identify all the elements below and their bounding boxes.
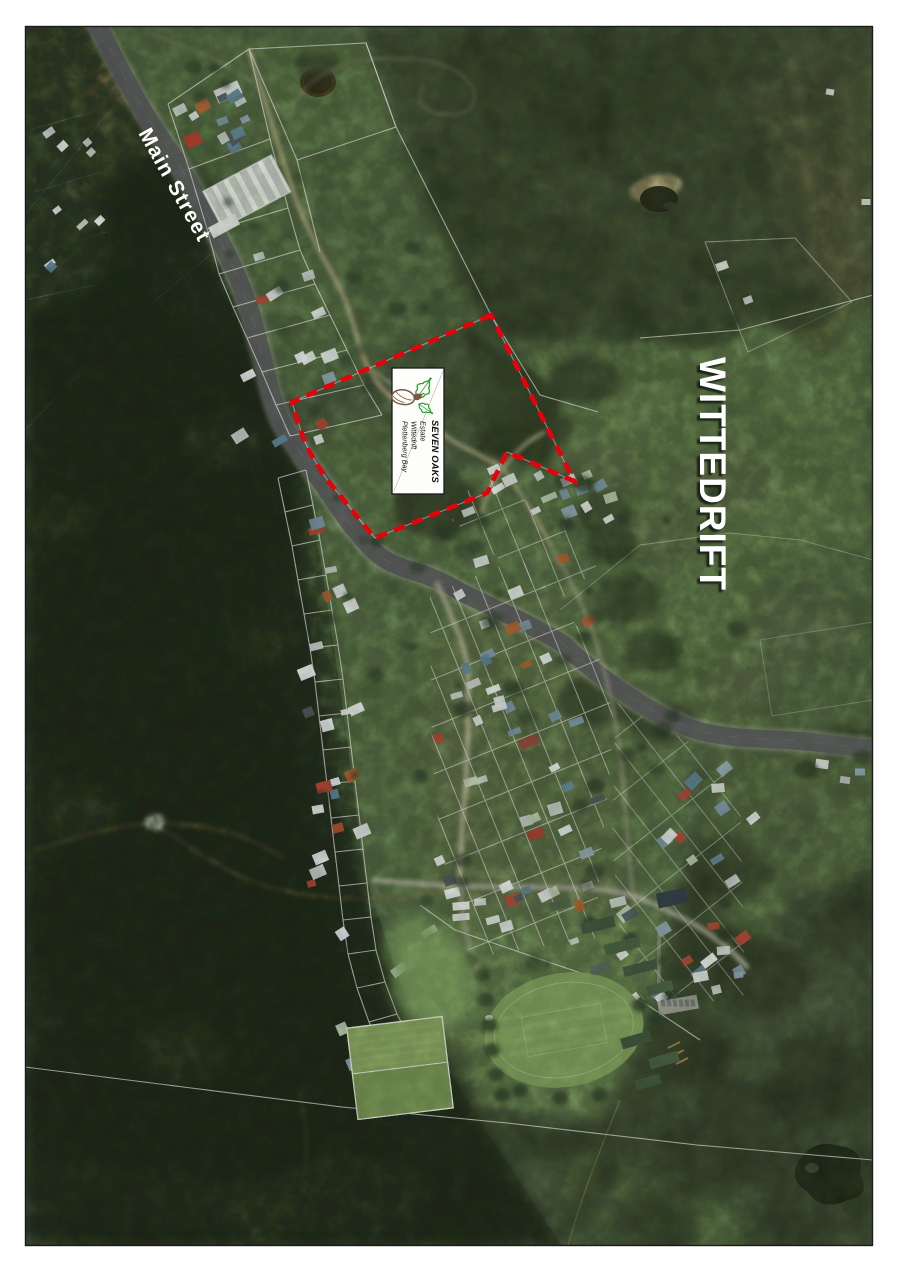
svg-text:SEVEN OAKS: SEVEN OAKS: [430, 420, 440, 484]
svg-text:Wittedrift: Wittedrift: [410, 421, 419, 450]
svg-text:Estate: Estate: [419, 421, 428, 441]
svg-text:Plettenberg Bay: Plettenberg Bay: [401, 421, 410, 473]
svg-text:WITTEDRIFT: WITTEDRIFT: [692, 357, 733, 591]
